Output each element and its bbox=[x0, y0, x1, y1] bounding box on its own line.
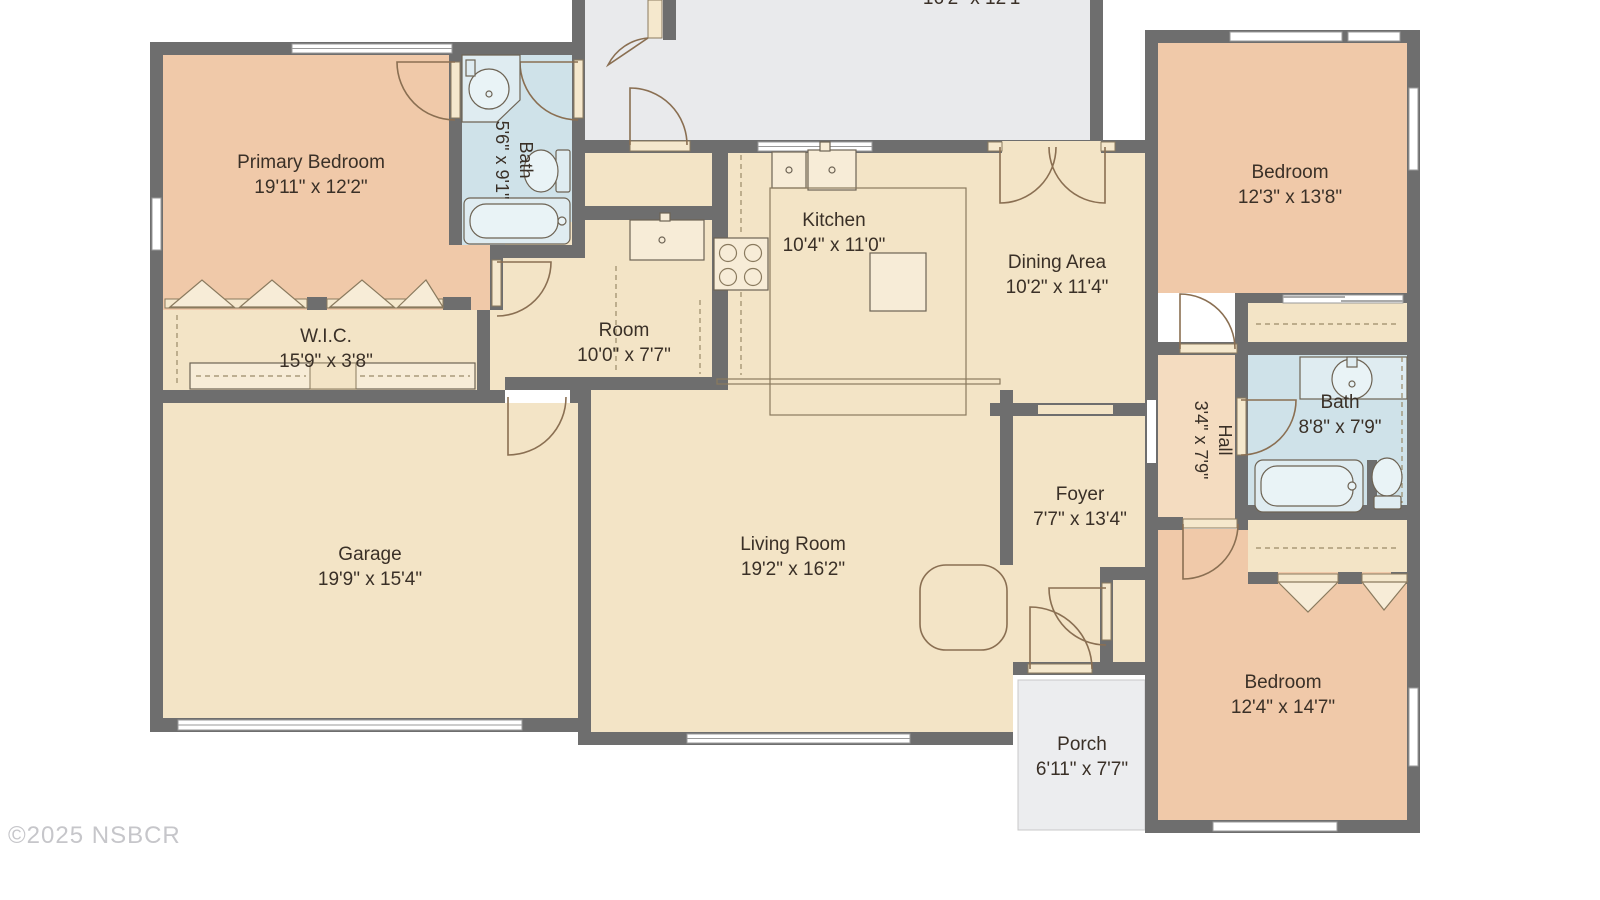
room-label-upper-partial: 16'2" x 12'1" bbox=[923, 0, 1027, 11]
room-label-foyer: Foyer 7'7" x 13'4" bbox=[1033, 482, 1127, 532]
room-name: Porch bbox=[1036, 732, 1128, 757]
bath2-toilet bbox=[1372, 458, 1402, 496]
room-name: Foyer bbox=[1033, 482, 1127, 507]
room-name: Bedroom bbox=[1238, 160, 1342, 185]
room-dims: 7'7" x 13'4" bbox=[1033, 507, 1127, 532]
foyer-dining-opening bbox=[1038, 405, 1113, 414]
room-name: Garage bbox=[318, 542, 422, 567]
floor-foyer-closet bbox=[1113, 580, 1145, 662]
room-label-dining-area: Dining Area 10'2" x 11'4" bbox=[1006, 250, 1109, 300]
room-label-primary-bedroom: Primary Bedroom 19'11" x 12'2" bbox=[237, 150, 385, 200]
room-label-porch: Porch 6'11" x 7'7" bbox=[1036, 732, 1128, 782]
dining-door-opening bbox=[1002, 141, 1101, 153]
room-name: Living Room bbox=[740, 532, 846, 557]
room-dims: 15'9" x 3'8" bbox=[279, 349, 373, 374]
hall-opening bbox=[1147, 400, 1156, 463]
room-dims: 16'2" x 12'1" bbox=[923, 0, 1027, 11]
room-label-wic: W.I.C. 15'9" x 3'8" bbox=[279, 324, 373, 374]
room-label-bath-1: Bath 5'6" x 9'1" bbox=[489, 121, 537, 200]
room-dims: 12'3" x 13'8" bbox=[1238, 185, 1342, 210]
room-label-bedroom-3: Bedroom 12'4" x 14'7" bbox=[1231, 670, 1335, 720]
floor-closet-2 bbox=[1248, 303, 1407, 342]
floor-plan-graphics bbox=[0, 0, 1600, 900]
room-dims: 12'4" x 14'7" bbox=[1231, 695, 1335, 720]
room-sink-counter bbox=[630, 220, 704, 260]
room-label-kitchen: Kitchen 10'4" x 11'0" bbox=[783, 208, 886, 258]
room-name: Bedroom bbox=[1231, 670, 1335, 695]
room-label-hall: Hall 3'4" x 7'9" bbox=[1188, 401, 1236, 480]
room-name: Hall bbox=[1212, 401, 1236, 480]
room-label-garage: Garage 19'9" x 15'4" bbox=[318, 542, 422, 592]
room-dims: 5'6" x 9'1" bbox=[489, 121, 513, 200]
room-dims: 19'11" x 12'2" bbox=[237, 175, 385, 200]
floor-closet-3 bbox=[1248, 520, 1407, 572]
room-name: Bath bbox=[513, 121, 537, 200]
room-name: Dining Area bbox=[1006, 250, 1109, 275]
bedroom2-door bbox=[1180, 294, 1235, 349]
room-name: Kitchen bbox=[783, 208, 886, 233]
room-dims: 19'2" x 16'2" bbox=[740, 557, 846, 582]
room-label-living-room: Living Room 19'2" x 16'2" bbox=[740, 532, 846, 582]
room-label-bath-2: Bath 8'8" x 7'9" bbox=[1298, 390, 1381, 440]
room-name: Bath bbox=[1298, 390, 1381, 415]
room-name: W.I.C. bbox=[279, 324, 373, 349]
room-dims: 19'9" x 15'4" bbox=[318, 567, 422, 592]
room-name: Room bbox=[577, 318, 671, 343]
room-dims: 6'11" x 7'7" bbox=[1036, 757, 1128, 782]
room-dims: 10'4" x 11'0" bbox=[783, 233, 886, 258]
room-label-room: Room 10'0" x 7'7" bbox=[577, 318, 671, 368]
room-name: Primary Bedroom bbox=[237, 150, 385, 175]
room-dims: 10'2" x 11'4" bbox=[1006, 275, 1109, 300]
copyright-watermark: ©2025 NSBCR bbox=[8, 822, 181, 850]
room-dims: 3'4" x 7'9" bbox=[1188, 401, 1212, 480]
room-label-bedroom-2: Bedroom 12'3" x 13'8" bbox=[1238, 160, 1342, 210]
kitchen-island bbox=[870, 253, 926, 311]
room-dims: 8'8" x 7'9" bbox=[1298, 415, 1381, 440]
room-dims: 10'0" x 7'7" bbox=[577, 343, 671, 368]
floor-plan: 16'2" x 12'1" Primary Bedroom 19'11" x 1… bbox=[0, 0, 1600, 900]
